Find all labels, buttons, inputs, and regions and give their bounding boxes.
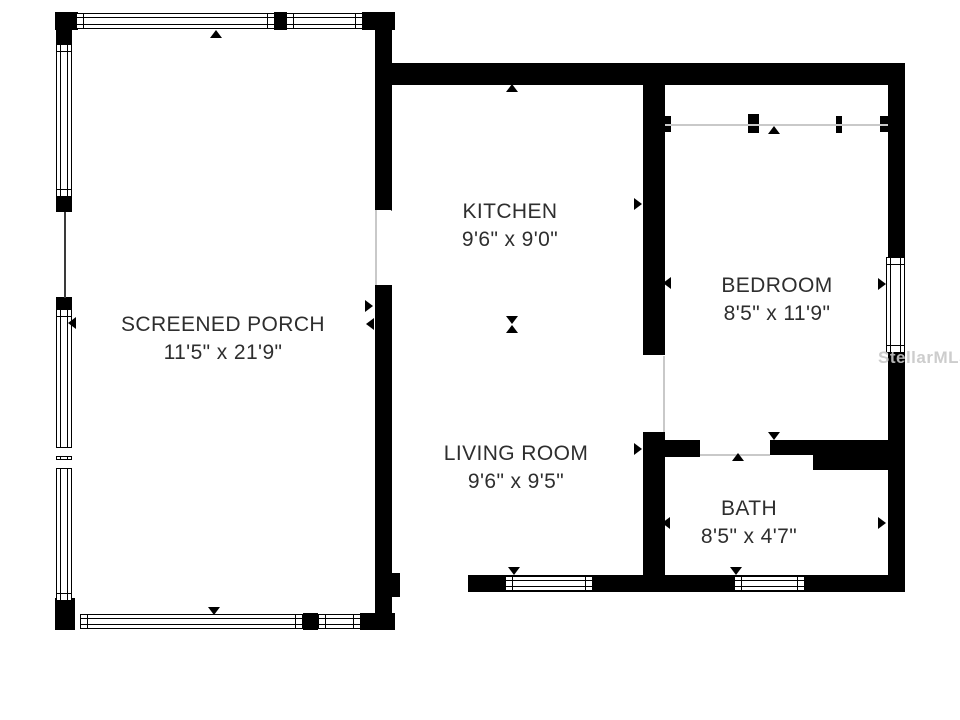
dimension-arrow-right-icon [878, 517, 886, 529]
room-dimensions: 9'6" x 9'5" [444, 468, 588, 496]
window [505, 576, 593, 591]
room-name: KITCHEN [462, 198, 558, 226]
room-dimensions: 11'5" x 21'9" [121, 339, 325, 367]
room-name: BEDROOM [721, 272, 832, 300]
dimension-arrow-left-icon [68, 317, 76, 329]
dimension-arrow-up-icon [506, 325, 518, 333]
dimension-arrow-left-icon [384, 199, 392, 211]
wall-segment [375, 12, 392, 210]
wall-segment [56, 196, 72, 212]
dimension-arrow-down-icon [208, 607, 220, 615]
room-label-kitchen: KITCHEN 9'6" x 9'0" [462, 198, 558, 254]
dimension-arrow-up-icon [506, 84, 518, 92]
wall-segment [770, 440, 890, 455]
dimension-arrow-up-icon [732, 453, 744, 461]
wall-segment [643, 85, 665, 355]
window [286, 13, 363, 29]
dimension-arrow-down-icon [506, 316, 518, 324]
dimension-arrow-left-icon [366, 318, 374, 330]
dimension-arrow-down-icon [768, 432, 780, 440]
wall-segment [360, 613, 395, 630]
window [80, 614, 303, 629]
dimension-arrow-left-icon [663, 277, 671, 289]
room-label-screened-porch: SCREENED PORCH 11'5" x 21'9" [121, 311, 325, 367]
dimension-arrow-right-icon [878, 278, 886, 290]
room-label-bath: BATH 8'5" x 4'7" [701, 495, 797, 551]
window-mullion [56, 459, 72, 469]
door-opening-line [375, 210, 377, 285]
room-name: BATH [701, 495, 797, 523]
dimension-arrow-down-icon [730, 567, 742, 575]
wall-segment [888, 85, 905, 257]
dimension-arrow-right-icon [365, 300, 373, 312]
stellar-mls-watermark: StellarMLS [878, 348, 960, 368]
dimension-arrow-right-icon [634, 443, 642, 455]
room-dimensions: 8'5" x 4'7" [701, 523, 797, 551]
floor-plan: SCREENED PORCH 11'5" x 21'9" KITCHEN 9'6… [0, 0, 960, 720]
window [734, 576, 805, 591]
wall-segment [643, 432, 665, 577]
screen-wall-line [64, 212, 66, 298]
room-dimensions: 8'5" x 11'9" [721, 300, 832, 328]
window [886, 257, 905, 353]
window [56, 44, 72, 197]
dimension-arrow-down-icon [508, 567, 520, 575]
wall-segment [665, 440, 700, 457]
wall-segment [55, 598, 75, 630]
wall-segment [392, 573, 400, 597]
window [56, 309, 72, 601]
wall-segment [56, 12, 72, 46]
dimension-arrow-up-icon [768, 126, 780, 134]
wall-segment [303, 613, 318, 630]
dimension-arrow-up-icon [210, 30, 222, 38]
room-dimensions: 9'6" x 9'0" [462, 226, 558, 254]
dimension-arrow-left-icon [662, 517, 670, 529]
room-label-bedroom: BEDROOM 8'5" x 11'9" [721, 272, 832, 328]
wall-segment [888, 353, 905, 592]
wall-segment [375, 63, 905, 85]
room-name: SCREENED PORCH [121, 311, 325, 339]
wall-segment [813, 455, 890, 470]
room-label-living-room: LIVING ROOM 9'6" x 9'5" [444, 440, 588, 496]
dimension-arrow-right-icon [634, 198, 642, 210]
window-mullion [56, 447, 72, 457]
wall-segment [375, 285, 392, 630]
window [318, 614, 361, 629]
room-name: LIVING ROOM [444, 440, 588, 468]
door-opening-line [663, 356, 665, 432]
window [76, 13, 275, 29]
